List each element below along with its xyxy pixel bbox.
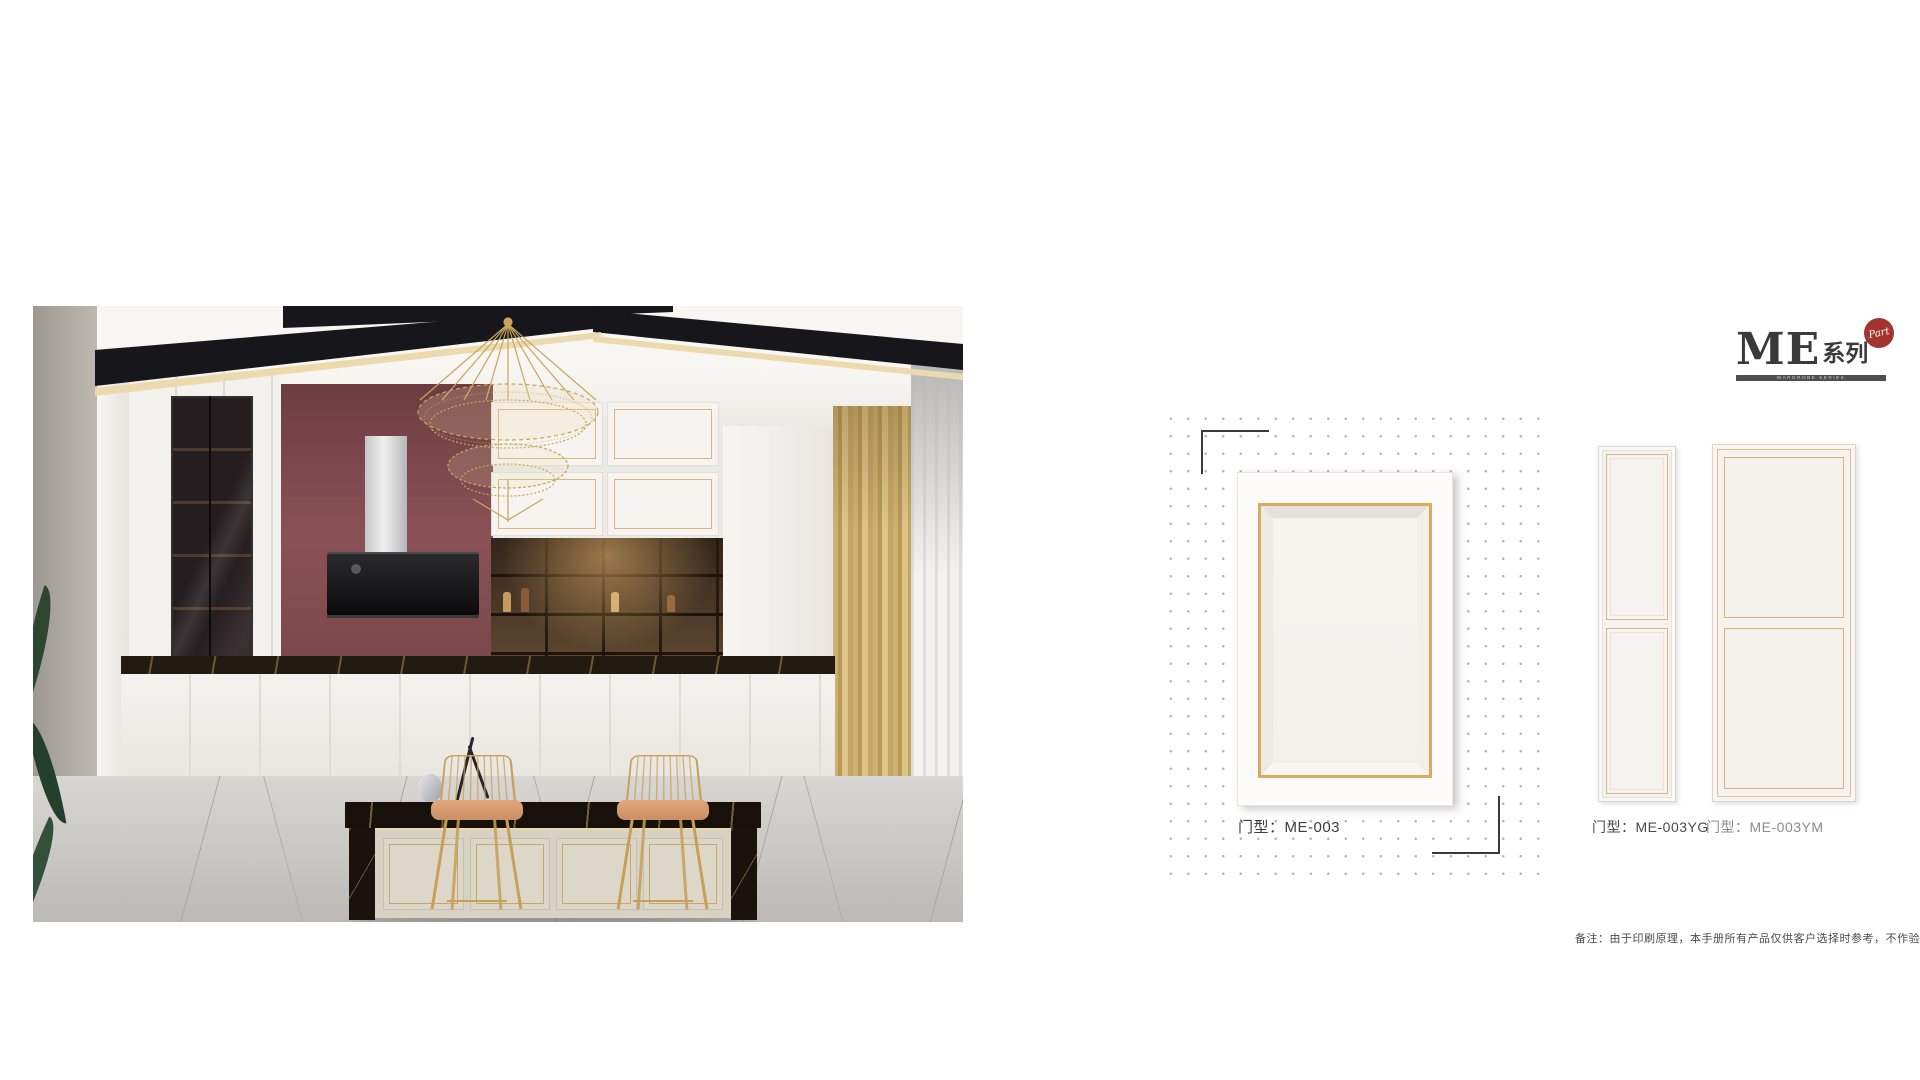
stool-leg [637,818,646,910]
hood-control-dot [351,564,361,574]
bottle [503,592,511,612]
catalog-page: 门型：ME-003 门型：ME-003YG 门型：ME-003YM ME 系列 … [0,0,1920,1080]
plant-leaf [33,585,65,696]
plant-leaf [33,715,66,827]
logo-series-text: 系列 [1822,334,1868,368]
logo-row: ME 系列 Part [1736,328,1888,372]
door-gold-frame [1258,503,1432,778]
door-bevel [1261,506,1429,775]
stool-leg [679,818,688,910]
bottle [521,588,529,612]
door-sample-me-003yg [1598,446,1676,802]
upper-cabinet-door [607,472,719,536]
plant-leaf [33,817,69,922]
bottle [611,592,619,612]
open-shelving [491,538,723,658]
logo-underline-bar: WARDROBE SERIES [1736,375,1886,381]
stool-footrest [447,900,507,902]
door-label-me-003ym: 门型：ME-003YM [1706,817,1824,837]
chandelier [393,314,623,538]
stool-leg [451,818,460,910]
door-label-me-003: 门型：ME-003 [1238,816,1340,837]
series-logo: ME 系列 Part WARDROBE SERIES [1736,328,1888,381]
range-hood [327,552,479,618]
door-sample-me-003 [1237,472,1453,806]
upper-cabinet-door [607,402,719,466]
corner-bracket-top-left [1201,430,1269,474]
door-sample-me-003ym [1712,444,1856,802]
kitchen-photo [33,306,963,922]
stool-leg [617,818,634,909]
stool-leg [493,818,502,910]
disclaimer-text: 备注：由于印刷原理，本手册所有产品仅供客户选择时参考，不作验收标准。 [1575,933,1920,945]
door-section [1606,628,1668,794]
marble-countertop [121,656,835,674]
stool-leg [431,818,448,909]
sheer-curtain [911,362,963,832]
bar-stool [431,742,523,912]
logo-me-text: ME [1736,328,1820,372]
footer-disclaimer: 备注：由于印刷原理，本手册所有产品仅供客户选择时参考，不作验收标准。07/08 [1575,930,1920,946]
logo-tagline: WARDROBE SERIES [1736,376,1886,381]
gold-curtain [833,406,911,818]
door-section [1606,454,1668,620]
door-inner-panel [1273,518,1417,763]
door-section [1724,457,1844,618]
bottle [667,595,675,612]
stool-footrest [633,900,693,902]
door-section [1724,628,1844,789]
bar-stool [617,742,709,912]
stool-leg [691,818,708,909]
stool-leg [505,818,522,909]
plant [33,566,79,922]
door-label-me-003yg: 门型：ME-003YG [1592,817,1709,837]
